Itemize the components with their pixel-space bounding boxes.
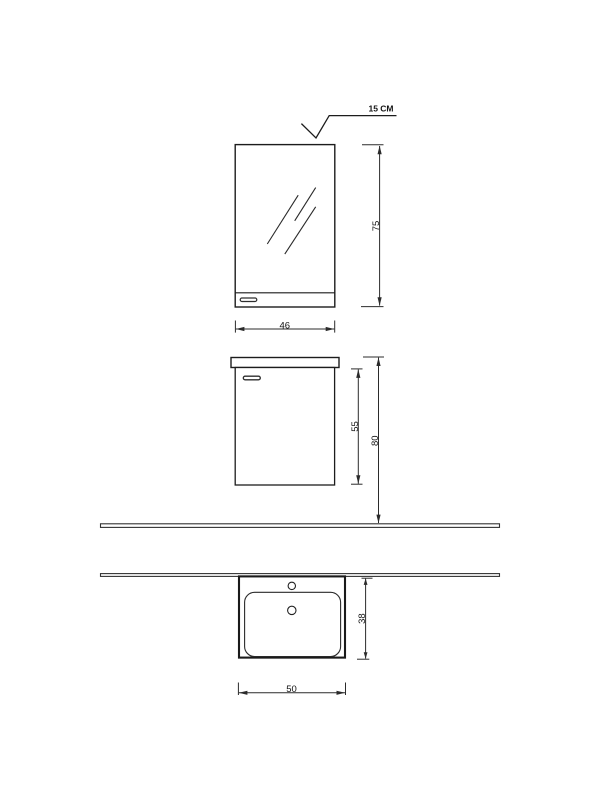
svg-text:75: 75 [371,221,382,232]
svg-text:15 CM: 15 CM [368,104,393,114]
svg-text:46: 46 [280,320,291,331]
svg-text:80: 80 [370,435,381,446]
svg-text:55: 55 [350,421,361,432]
svg-text:38: 38 [357,613,368,624]
svg-text:50: 50 [286,684,297,695]
